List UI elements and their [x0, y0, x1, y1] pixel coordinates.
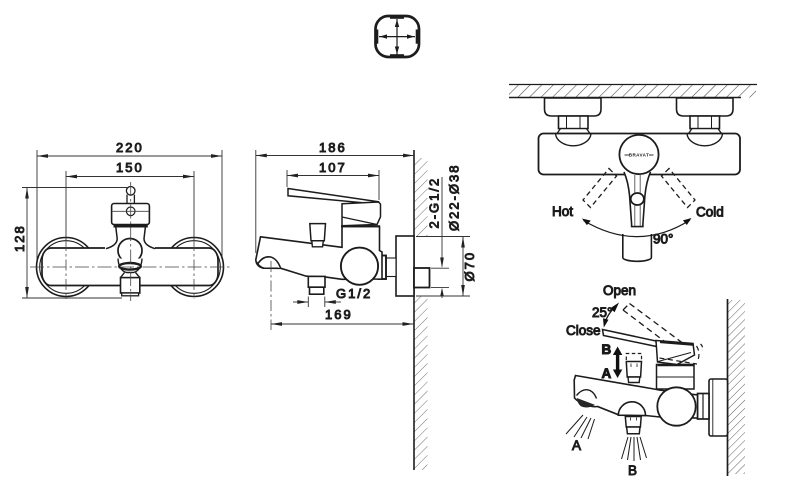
svg-text:186: 186 — [319, 140, 347, 155]
svg-text:Ø70: Ø70 — [462, 251, 477, 282]
svg-text:150: 150 — [116, 160, 144, 175]
svg-text:2-G1/2: 2-G1/2 — [427, 177, 442, 229]
svg-text:128: 128 — [12, 224, 27, 252]
svg-text:A: A — [572, 438, 581, 453]
svg-text:A: A — [602, 366, 612, 381]
svg-text:25°: 25° — [592, 305, 612, 320]
svg-text:B: B — [628, 463, 637, 478]
svg-text:Ø22-Ø38: Ø22-Ø38 — [447, 164, 462, 231]
svg-text:G1/2: G1/2 — [336, 286, 372, 301]
svg-text:107: 107 — [319, 160, 347, 175]
svg-text:90°: 90° — [653, 232, 673, 247]
svg-text:169: 169 — [325, 307, 353, 322]
svg-text:Hot: Hot — [552, 204, 573, 219]
svg-text:Close: Close — [566, 323, 601, 338]
svg-text:B: B — [602, 342, 612, 357]
svg-text:Cold: Cold — [696, 205, 724, 220]
svg-text:BRAVAT: BRAVAT — [629, 153, 650, 158]
svg-text:Open: Open — [603, 283, 636, 298]
svg-text:220: 220 — [116, 140, 144, 155]
